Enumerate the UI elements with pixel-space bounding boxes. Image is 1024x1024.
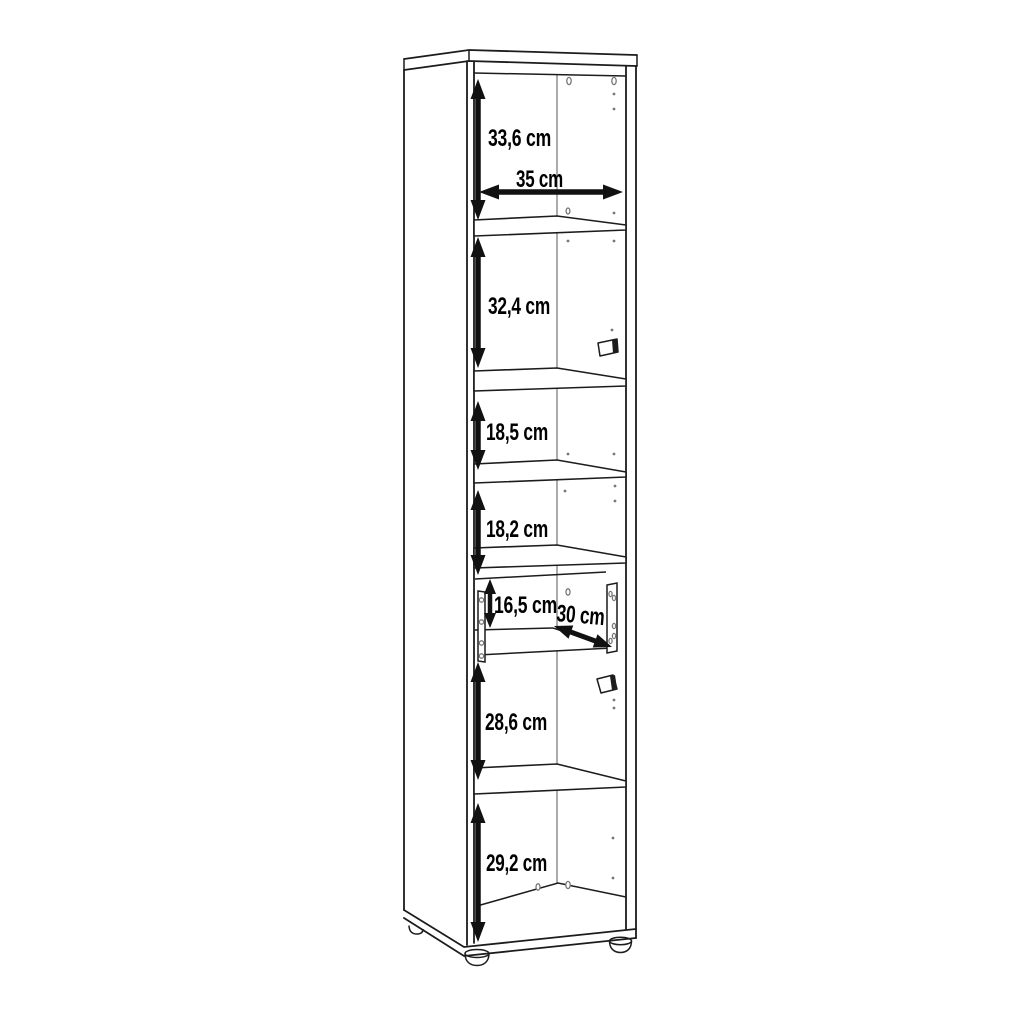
shelf-2 [474,368,626,391]
dim-label-compartment-6-height: 29,2 cm [486,850,547,877]
dim-arrow-compartment-1-height [471,79,486,220]
niche-left-rail [478,591,485,662]
arrowhead-right [603,185,623,200]
rail-hole [479,654,483,658]
top-panel-bottom-edge [404,61,637,70]
shelf-4 [474,545,626,568]
hinge-plate-lower [597,675,617,693]
niche-top-edge [475,572,606,579]
dim-label-interior-width: 35 cm [516,166,563,193]
top-panel-top-edge [404,50,637,59]
foot-bowl [610,941,632,953]
arrowhead-up [471,803,486,823]
hinge-plate-cam [612,339,618,353]
arrowhead-up [471,79,486,99]
cabinet-dimension-diagram: 33,6 cm 35 cm 32,4 cm 18,5 cm 18,2 cm 16… [0,0,1024,1024]
drill-hole [613,699,616,702]
drill-hole [613,707,616,710]
dim-label-compartment-4-height: 18,2 cm [486,516,548,543]
drill-hole [613,240,616,243]
dim-label-compartment-5-height: 28,6 cm [485,709,547,736]
top-panel-end-edges [404,50,637,70]
interior-ceiling-edge [474,73,626,76]
foot-back-left [409,926,423,935]
drill-hole [536,884,540,890]
rail-hole [479,620,483,624]
base-plinth [404,910,636,956]
shelf-1 [474,216,626,236]
drill-hole [612,77,616,84]
drill-hole [613,212,616,215]
dim-arrow-compartment-3-height [471,401,486,470]
top-panel [404,50,637,70]
drill-hole [614,485,617,488]
drill-hole [613,93,616,96]
drill-hole [564,490,567,493]
drill-hole [566,589,570,595]
left-front-corner-edges [467,61,474,945]
arrowhead-up [471,490,486,510]
rail-hole [479,598,483,602]
right-stile-edges [626,66,636,938]
dim-arrow-compartment-2-height [471,237,486,368]
arrowhead-down [471,348,486,368]
left-side-panel [404,61,474,945]
drill-hole [613,453,616,456]
diagram-canvas: 33,6 cm 35 cm 32,4 cm 18,5 cm 18,2 cm 16… [0,0,1024,1024]
rail-hole [612,633,615,638]
drill-hole [566,881,570,888]
drill-hole [566,208,570,214]
drill-hole [567,453,570,456]
dim-label-compartment-2-height: 32,4 cm [488,293,550,320]
rail-hole [612,595,615,600]
arrowhead-up [471,237,486,257]
drill-hole [613,108,616,111]
arrowhead-down [471,922,486,942]
right-side-panel [626,66,636,938]
dim-arrow-compartment-6-height [471,803,486,942]
arrowhead-up [471,662,486,682]
interior-floor-edges [477,883,626,906]
foot-front-left [465,950,489,966]
rail-hole [609,591,612,596]
dim-label-compartment-3-height: 18,5 cm [486,419,548,446]
dim-label-niche-depth: 30 cm [555,600,605,631]
rail-hole [612,623,615,628]
drill-hole [612,877,615,880]
shelf-3 [474,460,626,483]
shelf-5 [474,764,626,794]
niche-right-rail [607,583,617,653]
rail-hole [479,641,483,645]
arrowhead-down [471,200,486,220]
dim-arrow-compartment-5-height [471,662,486,780]
arrowhead-up [471,401,486,421]
arrowhead-left [479,185,499,200]
rail-hole [609,638,612,643]
hinge-plate-upper [598,339,618,356]
drill-hole [614,500,617,503]
dim-label-compartment-1-height: 33,6 cm [488,125,551,152]
plinth-bottom-edge [404,918,636,956]
drill-hole [612,837,615,840]
foot-outline [409,926,423,935]
drill-hole [611,329,614,332]
drill-hole [567,240,570,243]
drill-hole [567,77,571,84]
dim-label-niche-height: 16,5 cm [494,592,557,619]
